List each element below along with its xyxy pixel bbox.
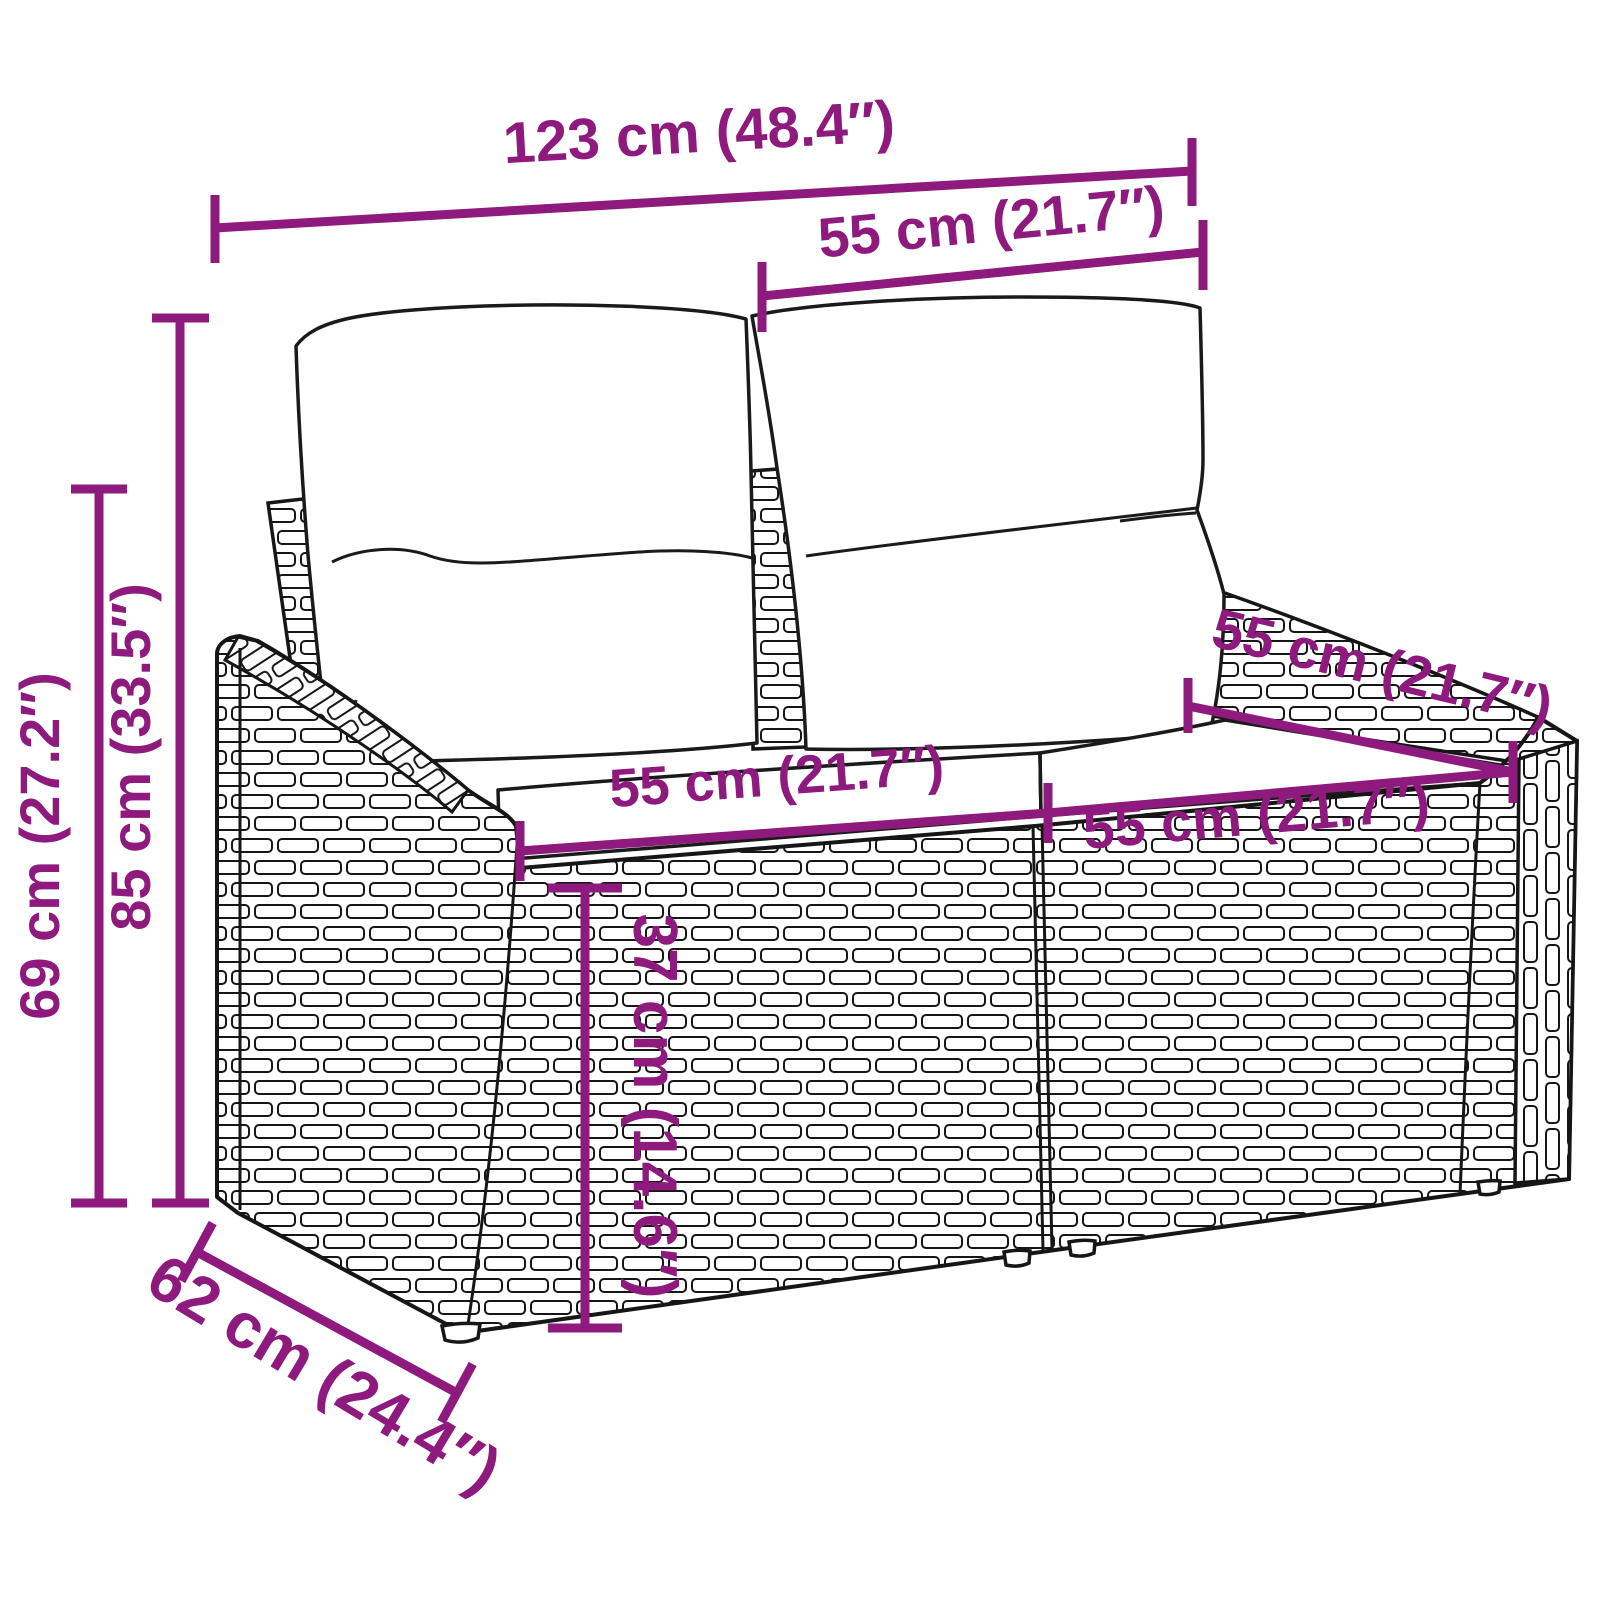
dim-overall-height: 85 cm (33.5″) — [99, 318, 209, 1203]
foot-center-right — [1069, 1240, 1095, 1256]
diagram-svg: 123 cm (48.4″) 55 cm (21.7″) 85 cm (33.5… — [0, 0, 1600, 1600]
dim-overall-height-label: 85 cm (33.5″) — [99, 583, 162, 930]
back-cushion-right — [752, 297, 1224, 749]
foot-front-left — [442, 1323, 480, 1342]
foot-front-right — [1478, 1181, 1500, 1195]
dim-seat-height-label: 37 cm (14.6″) — [620, 914, 689, 1299]
dim-armrest-height-label: 69 cm (27.2″) — [8, 672, 71, 1019]
back-cushion-left — [296, 305, 757, 763]
dim-overall-width-label: 123 cm (48.4″) — [501, 89, 896, 176]
seat-cushion-seam — [1040, 753, 1041, 816]
armrest-right-outer-face — [1515, 741, 1577, 1183]
dimension-diagram: 123 cm (48.4″) 55 cm (21.7″) 85 cm (33.5… — [0, 0, 1600, 1600]
foot-center-left — [1004, 1250, 1030, 1266]
